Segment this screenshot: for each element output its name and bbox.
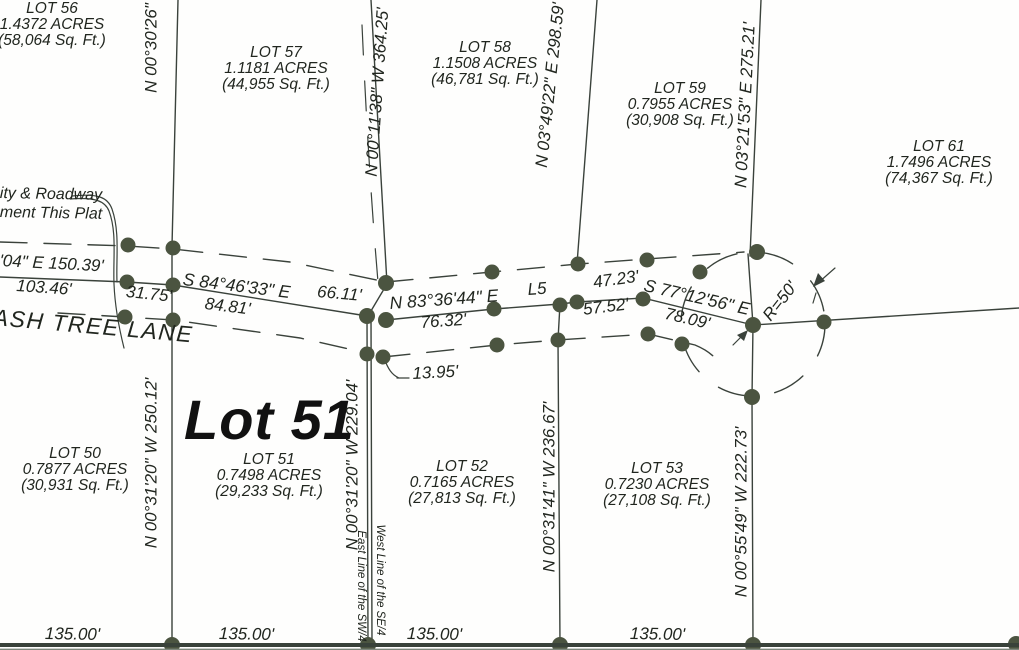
dim-66-11: 66.11': [317, 283, 363, 304]
dim-31-75: 31.75': [125, 283, 172, 305]
lot-57-label: LOT 57 1.1181 ACRES (44,955 Sq. Ft.): [211, 45, 341, 93]
radius-arrowhead: [813, 273, 825, 287]
lot-number: LOT 59: [615, 81, 745, 97]
lot-sqft: (74,367 Sq. Ft.): [874, 171, 1004, 187]
lot-61-label: LOT 61 1.7496 ACRES (74,367 Sq. Ft.): [874, 139, 1004, 187]
dim-13-95: 13.95': [412, 363, 459, 382]
lot-acres: 1.1508 ACRES: [420, 56, 550, 72]
lot-number: LOT 61: [874, 139, 1004, 155]
lot-sqft: (30,908 Sq. Ft.): [615, 113, 745, 129]
quarter-line-bottom: [367, 316, 372, 645]
lot-sqft: (27,108 Sq. Ft.): [592, 493, 722, 509]
lot-58-label: LOT 58 1.1508 ACRES (46,781 Sq. Ft.): [420, 40, 550, 88]
lot-acres: 1.1181 ACRES: [211, 61, 341, 77]
lot-sqft: (29,233 Sq. Ft.): [204, 484, 334, 500]
dim-south-135-2: 135.00': [219, 625, 275, 643]
bearing-quarter-bottom: N 00°31'20" W 229.04': [344, 380, 361, 551]
bearing-lot52-53: N 00°31'41" W 236.67': [541, 402, 558, 573]
lot-number: LOT 57: [211, 45, 341, 61]
lot-acres: 0.7230 ACRES: [592, 477, 722, 493]
lot-52-label: LOT 52 0.7165 ACRES (27,813 Sq. Ft.): [397, 459, 527, 507]
section-line-east: [753, 308, 1019, 325]
lot-acres: 0.7165 ACRES: [397, 475, 527, 491]
lot-number: LOT 53: [592, 461, 722, 477]
lot-number: LOT 52: [397, 459, 527, 475]
lot-number: LOT 51: [204, 452, 334, 468]
lot-acres: 0.7498 ACRES: [204, 468, 334, 484]
lot-sqft: (30,931 Sq. Ft.): [10, 478, 140, 494]
lot-sqft: (58,064 Sq. Ft.): [0, 33, 117, 49]
dim-76-32: 76.32': [420, 311, 467, 331]
bearing-lot50-51: N 00°31'20" W 250.12': [143, 378, 160, 549]
easement-note-line2: ment This Plat: [0, 205, 102, 223]
lot-53-label: LOT 53 0.7230 ACRES (27,108 Sq. Ft.): [592, 461, 722, 509]
dim-south-135-4: 135.00': [630, 625, 686, 643]
dim-south-135-1: 135.00': [45, 625, 101, 643]
lot-sqft: (27,813 Sq. Ft.): [397, 491, 527, 507]
lot-sqft: (44,955 Sq. Ft.): [211, 77, 341, 93]
easement-note-line1: ity & Roadway: [0, 186, 102, 204]
curve-label-l5: L5: [527, 280, 547, 298]
section-label-west-se: West Line of the SE/4: [373, 524, 385, 635]
lot-number: LOT 58: [420, 40, 550, 56]
radius-leader: [813, 268, 835, 303]
lot-56-label: LOT 56 1.4372 ACRES (58,064 Sq. Ft.): [0, 1, 117, 49]
lot-line-58-59: [577, 0, 597, 264]
lot-number: LOT 50: [10, 446, 140, 462]
lot-51-label: LOT 51 0.7498 ACRES (29,233 Sq. Ft.): [204, 452, 334, 500]
bearing-lot53-east: N 00°55'49" W 222.73': [733, 427, 750, 598]
lot-sqft: (46,781 Sq. Ft.): [420, 72, 550, 88]
plat-map: LOT 56 1.4372 ACRES (58,064 Sq. Ft.) LOT…: [0, 0, 1019, 650]
lot-59-label: LOT 59 0.7955 ACRES (30,908 Sq. Ft.): [615, 81, 745, 129]
featured-lot-51-title: Lot 51: [184, 392, 355, 448]
dim-south-135-3: 135.00': [407, 625, 463, 643]
bearing-west-line-top: N 00°30'26": [143, 3, 160, 93]
dim-left-dist: 103.46': [16, 277, 72, 298]
row-edge-north-east: [386, 252, 744, 282]
section-label-east-sw: East Line of the SW/4: [354, 530, 366, 641]
lot-acres: 1.4372 ACRES: [0, 17, 117, 33]
lot-acres: 1.7496 ACRES: [874, 155, 1004, 171]
lot-number: LOT 56: [0, 1, 117, 17]
lot-acres: 0.7955 ACRES: [615, 97, 745, 113]
section-boundary-south: [0, 643, 1019, 647]
lot-50-label: LOT 50 0.7877 ACRES (30,931 Sq. Ft.): [10, 446, 140, 494]
lot-acres: 0.7877 ACRES: [10, 462, 140, 478]
